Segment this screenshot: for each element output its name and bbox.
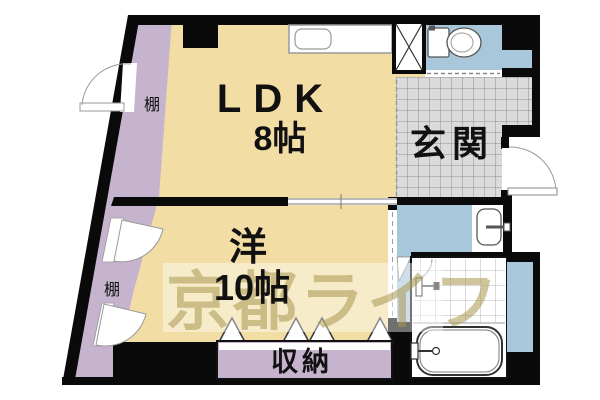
toilet-icon [428,26,481,58]
western-room-size-label: 10帖 [214,267,290,308]
exterior-notch-lower [512,195,564,252]
kitchen-counter-icon [289,25,392,53]
western-room-label: 洋 [229,227,267,269]
shelf-label-upper: 棚 [144,96,160,114]
ldk-size-label: 8帖 [254,120,307,158]
ldk-balcony-door [80,63,137,112]
entrance-label: 玄関 [410,123,494,164]
floor-plan: 京都ライフ LDK 8帖 玄関 洋 10帖 収納 棚 棚 [0,0,600,400]
bath-side-counter [507,262,533,352]
exterior-notch-door [509,137,564,190]
toilet-door [425,70,502,77]
washroom-floor [396,205,472,252]
shelf-label-lower: 棚 [104,281,120,299]
pipe-space-icon [392,20,426,74]
storage-label: 収納 [271,346,333,377]
ldk-label: LDK [217,77,335,121]
